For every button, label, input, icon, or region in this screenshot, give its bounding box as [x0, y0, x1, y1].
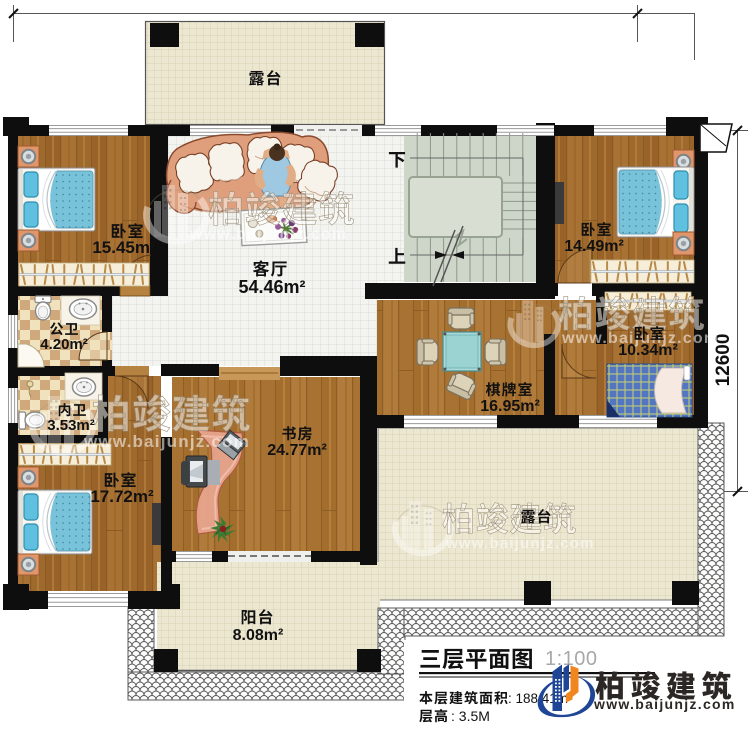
svg-text:www.baijunjz.com: www.baijunjz.com: [445, 535, 595, 552]
svg-text:16.95m²: 16.95m²: [480, 398, 540, 415]
svg-text:www.baijunjz.com: www.baijunjz.com: [189, 226, 347, 243]
svg-text:www.baijunjz.com: www.baijunjz.com: [593, 696, 736, 712]
svg-text:: 3.5M: : 3.5M: [451, 708, 490, 724]
svg-text:4.20m²: 4.20m²: [40, 336, 88, 353]
svg-text:10.34m²: 10.34m²: [618, 342, 678, 359]
svg-text:www.baijunjz.com: www.baijunjz.com: [83, 432, 250, 451]
svg-text:14.49m²: 14.49m²: [564, 238, 624, 255]
svg-text:17.72m²: 17.72m²: [90, 487, 154, 506]
svg-text:54.46m²: 54.46m²: [238, 277, 305, 297]
svg-text:3.53m²: 3.53m²: [47, 417, 95, 434]
svg-text:8.08m²: 8.08m²: [233, 627, 284, 644]
svg-text:15.45m²: 15.45m²: [92, 238, 156, 257]
svg-text:24.77m²: 24.77m²: [267, 442, 327, 459]
